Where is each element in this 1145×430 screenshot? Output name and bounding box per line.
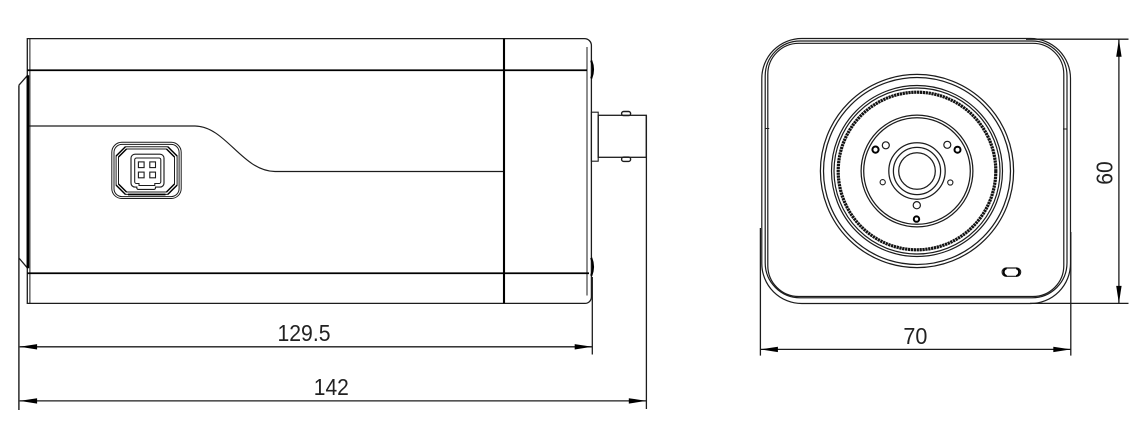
svg-text:70: 70 (903, 323, 927, 349)
svg-text:142: 142 (314, 374, 349, 400)
svg-text:129.5: 129.5 (278, 320, 331, 346)
svg-text:60: 60 (1091, 161, 1117, 185)
